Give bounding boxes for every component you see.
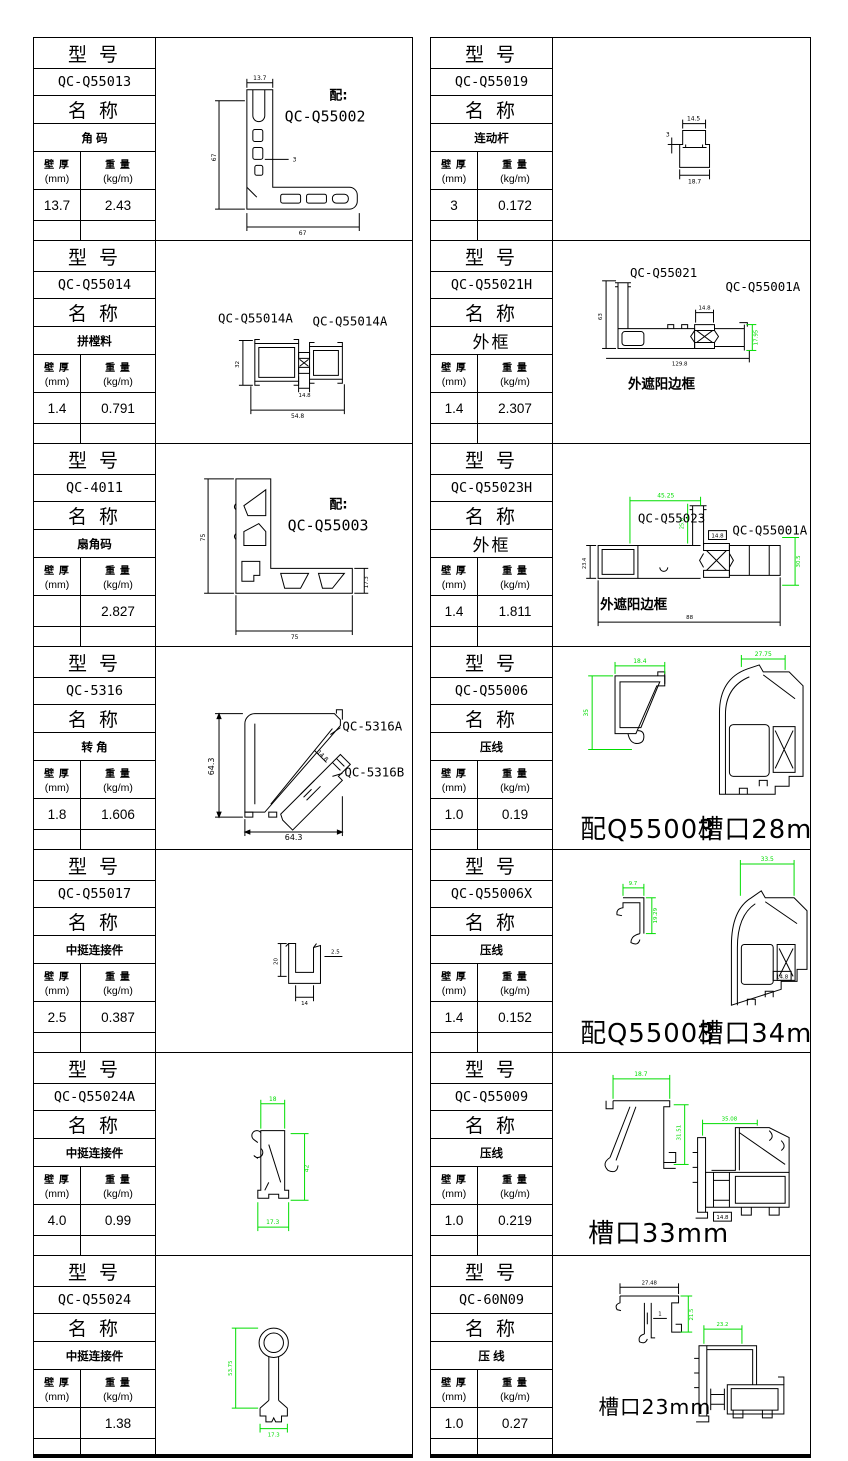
dim-label: 88: [686, 615, 693, 621]
dim-label: 13.7: [253, 75, 266, 82]
profile-card: 型 号 QC-Q55014 名 称 拼樘料 壁 厚(mm) 重 量(kg/m) …: [33, 240, 413, 444]
dim-label: 18.7: [634, 1071, 647, 1078]
profile-card: 型 号 QC-Q55023H 名 称 外框 壁 厚(mm) 重 量(kg/m) …: [430, 443, 811, 647]
profile-outline: [617, 891, 807, 1005]
dim-label: 32: [235, 361, 241, 368]
part-label: QC-Q55021: [630, 265, 697, 280]
dimension-lines: [668, 120, 710, 180]
profile-outline: [234, 479, 352, 593]
profile-drawing: 18 42 17.3: [34, 1053, 412, 1255]
part-label: QC-Q55001A: [732, 523, 807, 538]
dim-label: 33.5: [761, 856, 774, 863]
dim-label: 31.51: [677, 1125, 683, 1141]
dimension-lines: [215, 714, 342, 836]
dim-label: 17.3: [266, 1219, 279, 1226]
dim-label: 35.08: [722, 1117, 738, 1123]
profile-drawing: 64.3 64.3 14.8 QC-5316A QC-5316B: [34, 647, 412, 849]
profile-drawing: 32 14.8 54.8 QC-Q55014A QC-Q55014A: [34, 241, 412, 443]
drawing-caption: 槽口23mm: [599, 1395, 712, 1419]
dim-label: 3: [666, 132, 670, 139]
dim-label: 45.25: [657, 493, 674, 500]
dim-label: 21.5: [689, 1309, 695, 1321]
profile-card: 型 号 QC-60N09 名 称 压 线 壁 厚(mm) 重 量(kg/m) 1…: [430, 1255, 811, 1458]
dim-label: 14.8: [776, 974, 789, 980]
mate-code: QC-Q55002: [285, 108, 366, 126]
profile-drawing: 9.7 19.29 33.5 14.8 配Q55003 槽口34mm: [431, 850, 810, 1052]
dim-label: 14: [301, 1001, 308, 1007]
dim-label: 53.75: [228, 1360, 234, 1375]
drawing-caption: 配Q55003: [580, 1019, 715, 1049]
profile-outline: [252, 1131, 289, 1199]
drawing-caption: 配Q55003: [580, 815, 715, 845]
dim-label: 1: [658, 1311, 661, 1317]
dim-label: 19.29: [653, 907, 659, 923]
dim-label: 20: [274, 957, 280, 964]
dim-label: 14.8: [298, 393, 311, 399]
dim-label: 23.2: [716, 1322, 728, 1328]
dim-label: 129.8: [672, 361, 688, 367]
part-label: QC-Q55014A: [218, 311, 293, 326]
part-label: QC-Q55014A: [313, 314, 388, 329]
mate-prefix: 配:: [329, 89, 347, 104]
drawing-caption: 外遮阳边框: [600, 596, 668, 613]
profile-card: 型 号 QC-Q55024 名 称 中挺连接件 壁 厚(mm) 重 量(kg/m…: [33, 1255, 413, 1458]
mate-code: QC-Q55003: [288, 517, 369, 535]
dim-label: 27.75: [755, 651, 772, 658]
dim-label: 35: [583, 709, 590, 717]
dimension-lines-green: [588, 655, 785, 750]
dim-label: 17.3: [364, 576, 370, 589]
profile-outline: [286, 944, 321, 984]
dim-label: 14.8: [315, 749, 329, 763]
dim-label: 17.3: [268, 1432, 280, 1438]
dim-label: 64.3: [207, 758, 216, 776]
dim-label: 3: [293, 156, 297, 163]
profile-card: 型 号 QC-Q55017 名 称 中挺连接件 壁 厚(mm) 重 量(kg/m…: [33, 849, 413, 1053]
dim-label: 14.8: [698, 306, 711, 312]
dim-label: 9.7: [629, 881, 638, 887]
part-label: QC-5316B: [344, 764, 404, 779]
profile-card: 型 号 QC-Q55006 名 称 压线 壁 厚(mm) 重 量(kg/m) 1…: [430, 646, 811, 850]
profile-drawing: 14.5 18.7 3: [431, 38, 810, 240]
drawing-caption: 槽口33mm: [588, 1219, 729, 1249]
profile-drawing: 13.7 67 67 3 配: QC-Q55002: [34, 38, 412, 240]
dim-label: 14.8: [711, 534, 724, 540]
part-label: QC-Q55023: [638, 511, 705, 526]
part-label: QC-5316A: [342, 719, 402, 734]
profile-outline: [245, 710, 350, 830]
dim-label: 30.5: [796, 555, 802, 567]
dim-label: 64.3: [285, 833, 303, 842]
profile-drawing: 27.48 1 21.5 23.2 槽口23mm: [431, 1256, 810, 1454]
dimension-lines-green: [623, 860, 794, 934]
dim-label: 54.8: [291, 413, 304, 420]
profile-drawing: 75 75 17.3 配: QC-Q55003: [34, 444, 412, 646]
profile-card: 型 号 QC-Q55024A 名 称 中挺连接件 壁 厚(mm) 重 量(kg/…: [33, 1052, 413, 1256]
profile-drawing: 63 14.8 129.8 17.95 QC-Q55021 QC-Q55001A…: [431, 241, 810, 443]
dim-label: 2.5: [331, 949, 340, 955]
dim-label: 67: [211, 153, 218, 161]
dim-label: 23.4: [582, 558, 588, 569]
dim-label: 67: [299, 230, 307, 237]
dimension-lines: [620, 1283, 679, 1324]
dim-label: 14.5: [687, 116, 700, 123]
profile-drawing: 53.75 17.3: [34, 1256, 412, 1454]
drawing-caption: 槽口28mm: [698, 815, 810, 845]
drawing-caption: 槽口34mm: [698, 1019, 810, 1049]
profile-card: 型 号 QC-Q55006X 名 称 压线 壁 厚(mm) 重 量(kg/m) …: [430, 849, 811, 1053]
profile-card: 型 号 QC-4011 名 称 扇角码 壁 厚(mm) 重 量(kg/m) 2.…: [33, 443, 413, 647]
dim-label: 75: [200, 534, 207, 542]
profile-card: 型 号 QC-5316 名 称 转 角 壁 厚(mm) 重 量(kg/m) 1.…: [33, 646, 413, 850]
profile-drawing: 45.25 25.6 23.4 14.8 30.5 88 QC-Q55023 Q…: [431, 444, 810, 646]
dimension-lines: [258, 1100, 309, 1231]
drawing-caption: 外遮阳边框: [628, 375, 696, 392]
profile-drawing: 18.4 35 27.75 配Q55003 槽口28mm: [431, 647, 810, 849]
profile-outline: [680, 131, 710, 168]
dim-label: 18: [269, 1096, 277, 1103]
profile-card: 型 号 QC-Q55013 名 称 角 码 壁 厚(mm) 重 量(kg/m) …: [33, 37, 413, 241]
catalog-page: { "page": { "bg": "#ffffff", "line": "#0…: [0, 0, 848, 1461]
part-label: QC-Q55001A: [725, 279, 800, 294]
dim-label: 75: [291, 634, 299, 641]
dim-label: 63: [598, 313, 604, 320]
dim-label: 18.7: [688, 178, 701, 185]
dim-label: 27.48: [642, 1280, 658, 1286]
profile-card: 型 号 QC-Q55019 名 称 连动杆 壁 厚(mm) 重 量(kg/m) …: [430, 37, 811, 241]
dim-label: 17.95: [753, 330, 759, 346]
profile-outline: [259, 1328, 288, 1422]
profile-card: 型 号 QC-Q55021H 名 称 外框 壁 厚(mm) 重 量(kg/m) …: [430, 240, 811, 444]
dim-label: 18.4: [633, 658, 646, 665]
dim-label: 42: [304, 1164, 311, 1172]
profile-outline: [615, 665, 803, 794]
profile-drawing: 18.7 31.51 35.08 14.8 槽口33mm: [431, 1053, 810, 1255]
mate-prefix: 配:: [329, 498, 347, 513]
profile-card: 型 号 QC-Q55009 名 称 压线 壁 厚(mm) 重 量(kg/m) 1…: [430, 1052, 811, 1256]
profile-drawing: 20 2.5 14: [34, 850, 412, 1052]
profile-outline: [605, 1101, 789, 1218]
